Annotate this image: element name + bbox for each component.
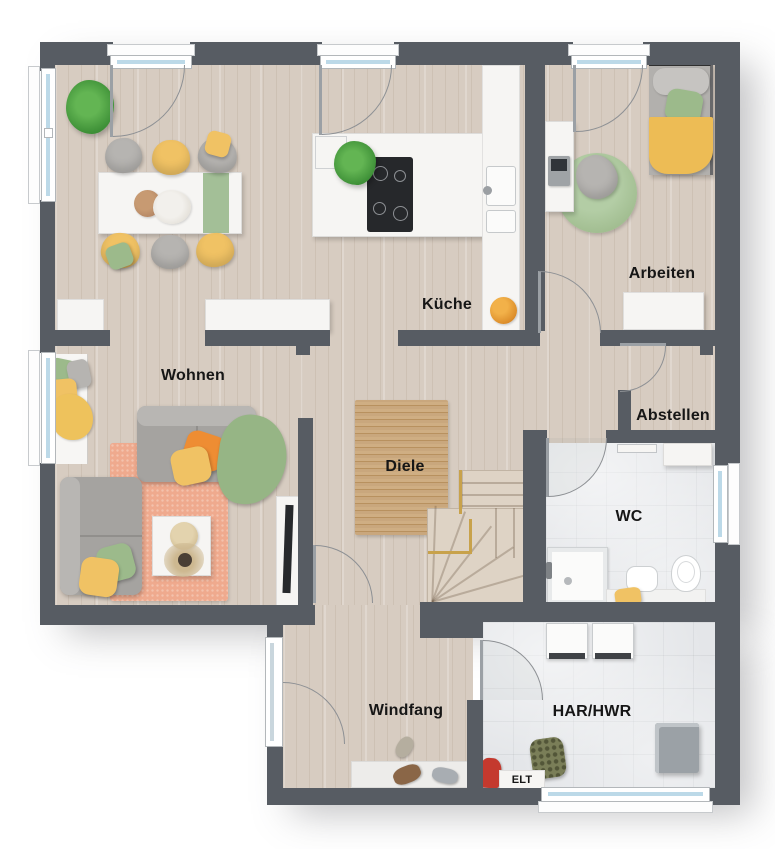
window-handle: [44, 128, 53, 138]
entrance-door-inner: [270, 643, 274, 741]
wall: [40, 463, 55, 625]
heating-unit: [655, 723, 699, 773]
daybed-blanket: [649, 117, 713, 174]
wall: [267, 788, 543, 805]
stair-tread: [462, 505, 527, 507]
window-glass: [46, 358, 50, 458]
centerpiece-flowers: [153, 190, 191, 224]
toilet-seat: [677, 561, 695, 583]
room-label-kueche: Küche: [422, 296, 472, 314]
sink-faucet: [483, 186, 492, 195]
staircase-winder: [427, 508, 527, 605]
floor-plan: Wohnen Küche Arbeiten Abstellen Diele WC…: [0, 0, 775, 849]
island-plant: [334, 141, 376, 185]
room-label-elt: ELT: [512, 774, 533, 786]
wall: [700, 346, 713, 355]
room-label-har-hwr: HAR/HWR: [553, 703, 632, 721]
room-label-wohnen: Wohnen: [161, 367, 225, 385]
shower-faucet: [546, 562, 552, 579]
wall: [298, 418, 313, 605]
wall: [715, 540, 740, 805]
cooktop-burner: [393, 206, 408, 221]
door-glass: [117, 60, 185, 64]
washer-panel: [549, 653, 585, 659]
wall: [267, 747, 283, 788]
staircase-upper-flight: [462, 470, 527, 510]
window-sill: [538, 801, 713, 813]
room-label-diele: Diele: [385, 458, 424, 476]
decor-bowl: [490, 297, 517, 324]
sofa-pillow: [78, 556, 121, 599]
dryer-panel: [595, 653, 631, 659]
window-sill: [728, 463, 740, 545]
kitchen-sink: [486, 166, 516, 206]
entrance-door: [265, 637, 283, 747]
wall: [715, 65, 740, 467]
window-glass: [718, 471, 722, 537]
office-sideboard: [623, 292, 704, 330]
room-label-arbeiten: Arbeiten: [629, 265, 696, 283]
dining-chair: [151, 235, 189, 269]
room-label-abstellen: Abstellen: [636, 407, 710, 425]
dining-chair: [152, 140, 190, 175]
door-glass: [577, 60, 641, 64]
plant-pot: [178, 553, 192, 567]
room-label-windfang: Windfang: [369, 702, 443, 720]
laptop-screen: [551, 159, 567, 171]
cooktop-burner: [373, 166, 388, 181]
wall: [523, 430, 547, 443]
stair-handrail: [459, 470, 462, 514]
wc-radiator: [617, 444, 657, 453]
window-sill: [28, 66, 40, 204]
stair-handrail: [469, 519, 472, 554]
wall: [205, 330, 330, 346]
wall: [190, 42, 322, 65]
corner-plant: [66, 80, 114, 134]
wc-cabinet: [663, 443, 712, 466]
wall: [40, 42, 113, 65]
wall: [398, 330, 540, 346]
stair-handrail: [428, 551, 472, 554]
table-runner: [203, 173, 229, 233]
shower: [547, 547, 608, 605]
wall: [523, 443, 546, 605]
door-glass: [326, 60, 390, 64]
stair-tread: [462, 494, 527, 496]
wall: [296, 346, 310, 355]
wall: [473, 602, 715, 622]
stair-tread: [462, 482, 527, 484]
shower-drain: [564, 577, 572, 585]
wall: [606, 430, 715, 443]
wall: [40, 605, 315, 625]
stair-tread: [513, 508, 515, 558]
kitchen-sink-half: [486, 210, 516, 233]
divider-sideboard: [205, 299, 330, 331]
window-sill: [28, 350, 40, 466]
wall: [394, 42, 573, 65]
wall: [40, 330, 110, 346]
wall: [467, 622, 483, 638]
wall: [643, 42, 740, 65]
sofa-cushion-split: [80, 535, 142, 537]
cooktop-burner: [373, 202, 386, 215]
stair-tread: [495, 508, 497, 558]
cooktop-burner: [394, 170, 406, 182]
wall: [467, 700, 483, 788]
sofa-backrest: [60, 477, 80, 595]
window-glass: [548, 792, 703, 796]
room-label-wc: WC: [615, 508, 642, 526]
